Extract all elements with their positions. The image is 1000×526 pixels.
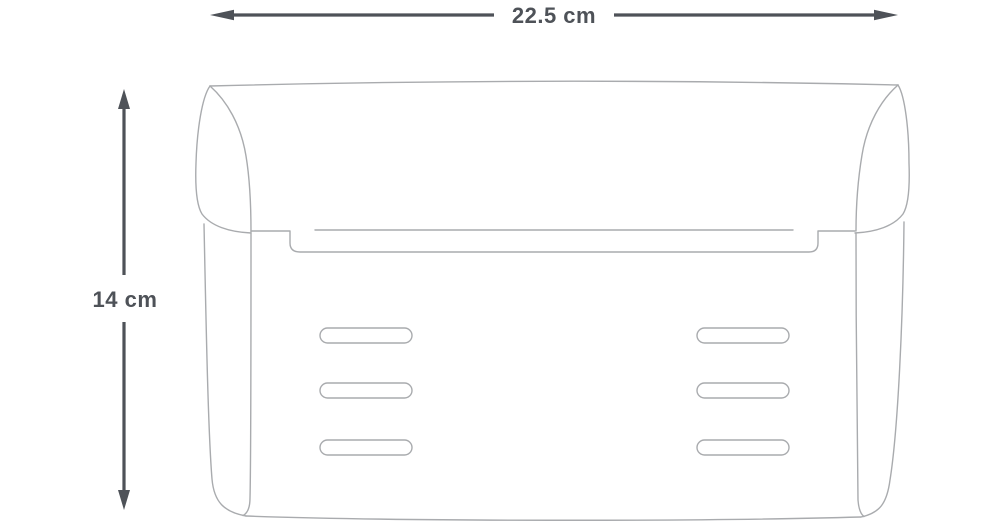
webbing-slot	[320, 383, 412, 398]
width-dimension: 22.5 cm	[210, 3, 898, 28]
body-bottom-edge	[246, 516, 861, 520]
flap-left-gusset-outer-edge	[196, 86, 251, 233]
flap-left-gusset-inner-seam	[210, 86, 251, 232]
flap-top-edge	[210, 81, 898, 86]
arrow-right-icon	[874, 10, 898, 20]
webbing-slot	[320, 440, 412, 455]
webbing-slot	[697, 383, 789, 398]
width-dimension-label: 22.5 cm	[512, 3, 596, 28]
webbing-slot	[697, 440, 789, 455]
diagram-svg: 22.5 cm 14 cm	[0, 0, 1000, 526]
front-hem-line	[251, 231, 855, 252]
flap-right-gusset-inner-seam	[856, 85, 898, 231]
dimension-diagram: 22.5 cm 14 cm	[0, 0, 1000, 526]
webbing-slot	[320, 328, 412, 343]
flap-right-gusset-outer-edge	[855, 85, 909, 233]
body-left-side-seam	[243, 233, 251, 516]
bag-outline-drawing	[196, 81, 910, 520]
arrow-down-icon	[118, 490, 130, 510]
body-right-side-seam	[856, 233, 864, 517]
webbing-slot	[697, 328, 789, 343]
arrow-up-icon	[118, 89, 130, 109]
height-dimension: 14 cm	[93, 89, 158, 510]
height-dimension-label: 14 cm	[93, 287, 158, 312]
arrow-left-icon	[210, 10, 234, 20]
body-right-edge	[861, 222, 904, 517]
body-left-edge	[204, 224, 246, 516]
